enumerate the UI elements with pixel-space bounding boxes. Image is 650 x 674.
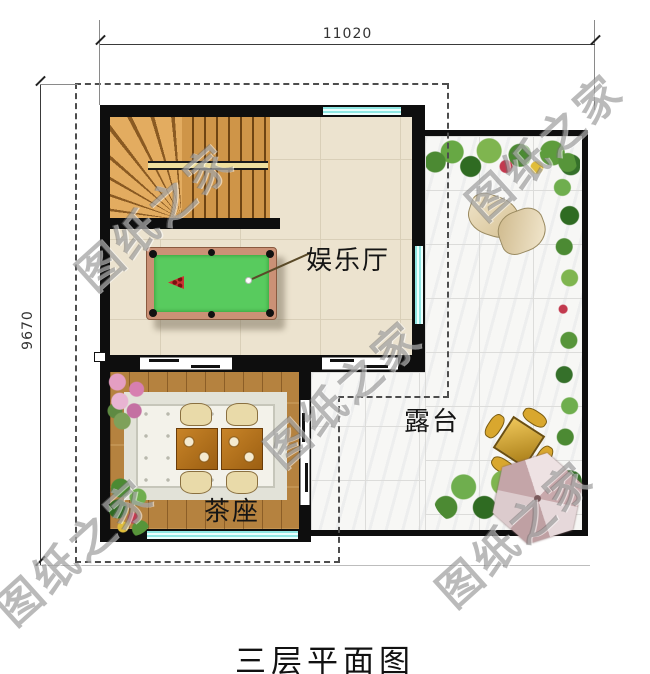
sliding-panel <box>191 365 220 368</box>
pool-table <box>146 247 277 320</box>
pool-pocket <box>208 249 215 256</box>
room-label-entertainment: 娱乐厅 <box>306 240 390 277</box>
tea-chair <box>226 403 258 426</box>
sliding-panel <box>305 463 308 492</box>
pool-pocket <box>266 309 274 317</box>
left-dimension-value: 9670 <box>20 310 36 350</box>
potted-plant-pink <box>103 370 151 430</box>
sliding-window-middle-left <box>140 357 232 370</box>
roof-outline-dashed <box>75 83 448 85</box>
roof-outline-dashed <box>75 561 340 563</box>
window-top <box>322 106 402 116</box>
top-dimension-value: 11020 <box>100 26 595 42</box>
roof-outline-dashed <box>75 83 77 563</box>
window-tea-bottom <box>146 530 299 540</box>
left-dimension-line <box>40 85 41 565</box>
room-label-tea: 茶座 <box>204 491 260 528</box>
room-label-terrace: 露台 <box>404 401 460 438</box>
watermark: 图纸之家 <box>0 462 166 638</box>
page-title: 三层平面图 <box>0 636 650 674</box>
tea-chair <box>180 403 212 426</box>
tea-table <box>176 428 218 470</box>
sliding-panel <box>149 359 178 362</box>
floor-plan-canvas: 11020 9670 <box>0 0 650 674</box>
pool-pocket <box>266 250 274 258</box>
top-dimension-line <box>100 44 595 45</box>
pool-pocket <box>208 311 215 318</box>
roof-outline-dashed <box>447 83 449 397</box>
pool-pocket <box>149 309 157 317</box>
window-hall-right <box>414 245 424 325</box>
terrace-planting-right <box>548 150 584 462</box>
dimension-extension-line <box>40 84 78 85</box>
wall-junction-marker <box>94 352 106 362</box>
